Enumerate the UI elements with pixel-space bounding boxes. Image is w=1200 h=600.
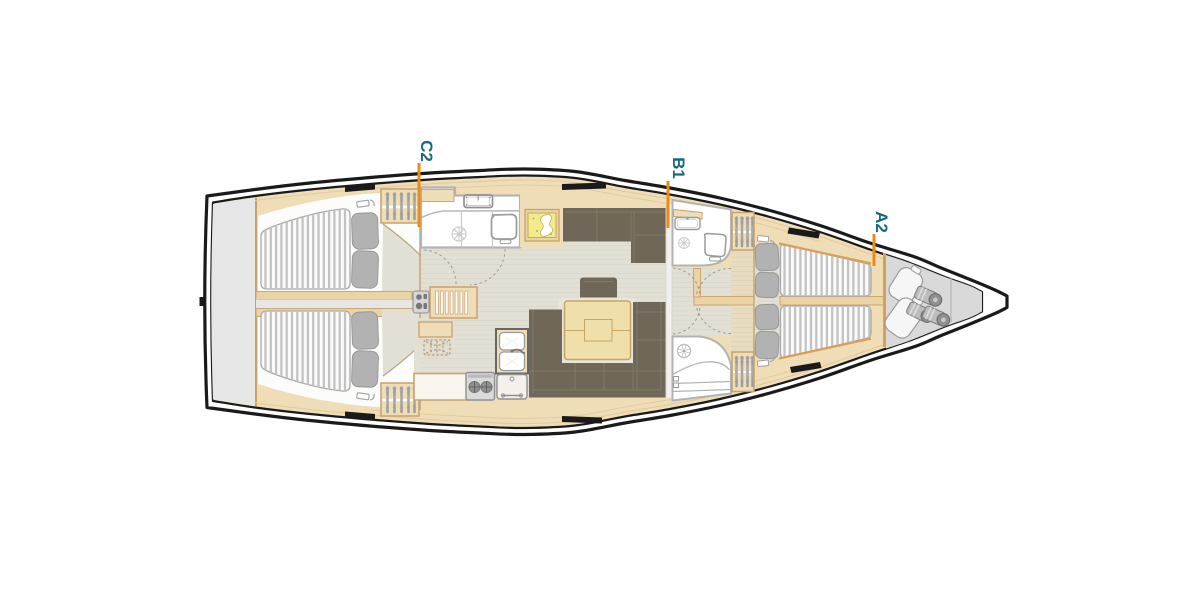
svg-text:A2: A2 — [872, 211, 891, 233]
svg-text:C2: C2 — [417, 140, 436, 162]
svg-text:B1: B1 — [669, 157, 688, 179]
